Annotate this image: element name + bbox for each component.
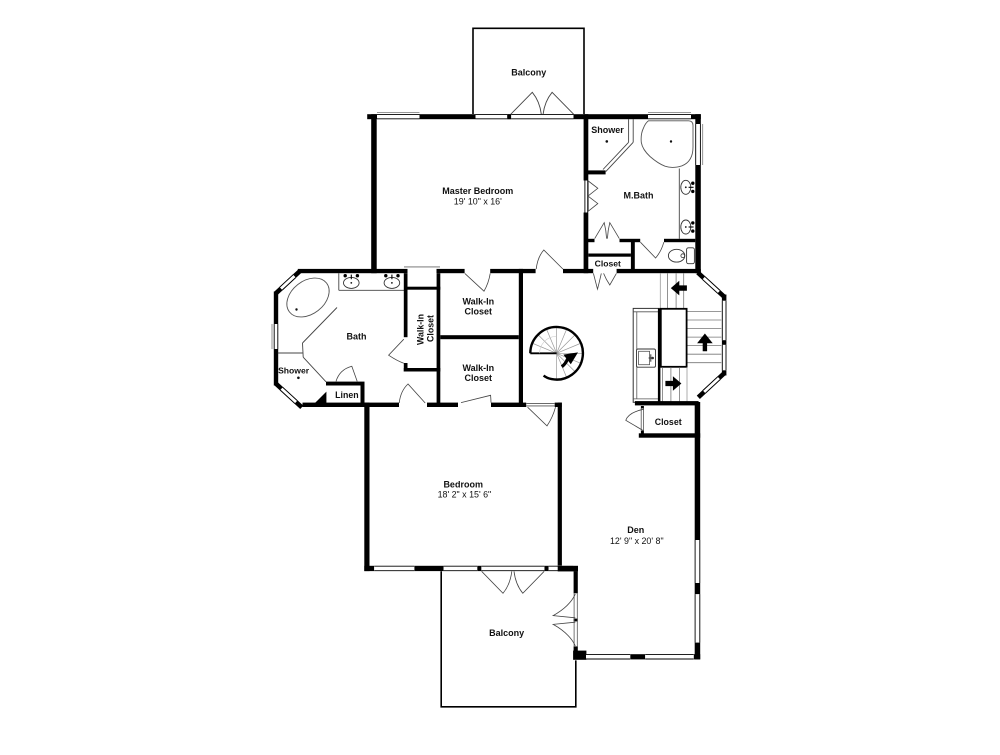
- svg-text:Closet: Closet: [465, 373, 493, 383]
- svg-text:Balcony: Balcony: [511, 67, 546, 77]
- svg-text:Walk-In: Walk-In: [462, 363, 494, 373]
- svg-text:Bedroom: Bedroom: [443, 480, 483, 490]
- svg-text:Closet: Closet: [655, 417, 682, 427]
- svg-text:12' 9" x 20' 8": 12' 9" x 20' 8": [610, 536, 664, 546]
- svg-text:18' 2" x 15' 6": 18' 2" x 15' 6": [438, 490, 492, 500]
- svg-text:Closet: Closet: [465, 307, 493, 317]
- svg-text:Master Bedroom: Master Bedroom: [442, 186, 513, 196]
- svg-text:Balcony: Balcony: [489, 628, 524, 638]
- svg-text:Shower: Shower: [278, 365, 310, 375]
- svg-text:Shower: Shower: [591, 125, 624, 135]
- svg-text:Linen: Linen: [335, 390, 358, 400]
- svg-text:Walk-In: Walk-In: [462, 297, 494, 307]
- svg-text:Walk-In: Walk-In: [416, 314, 426, 345]
- svg-text:M.Bath: M.Bath: [624, 191, 654, 201]
- svg-text:Den: Den: [627, 525, 644, 535]
- svg-text:Bath: Bath: [347, 332, 367, 342]
- svg-text:Closet: Closet: [426, 315, 436, 342]
- svg-text:Closet: Closet: [595, 258, 621, 268]
- svg-text:19' 10" x 16': 19' 10" x 16': [454, 196, 502, 206]
